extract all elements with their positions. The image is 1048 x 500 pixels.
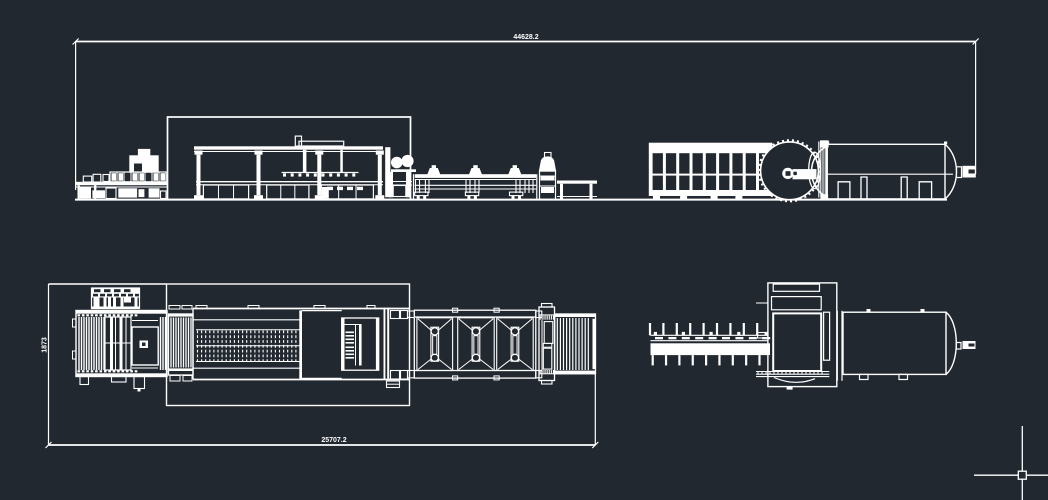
svg-text:1873: 1873 [42, 337, 49, 353]
svg-text:44628.2: 44628.2 [513, 34, 538, 41]
svg-text:25707.2: 25707.2 [321, 437, 346, 444]
